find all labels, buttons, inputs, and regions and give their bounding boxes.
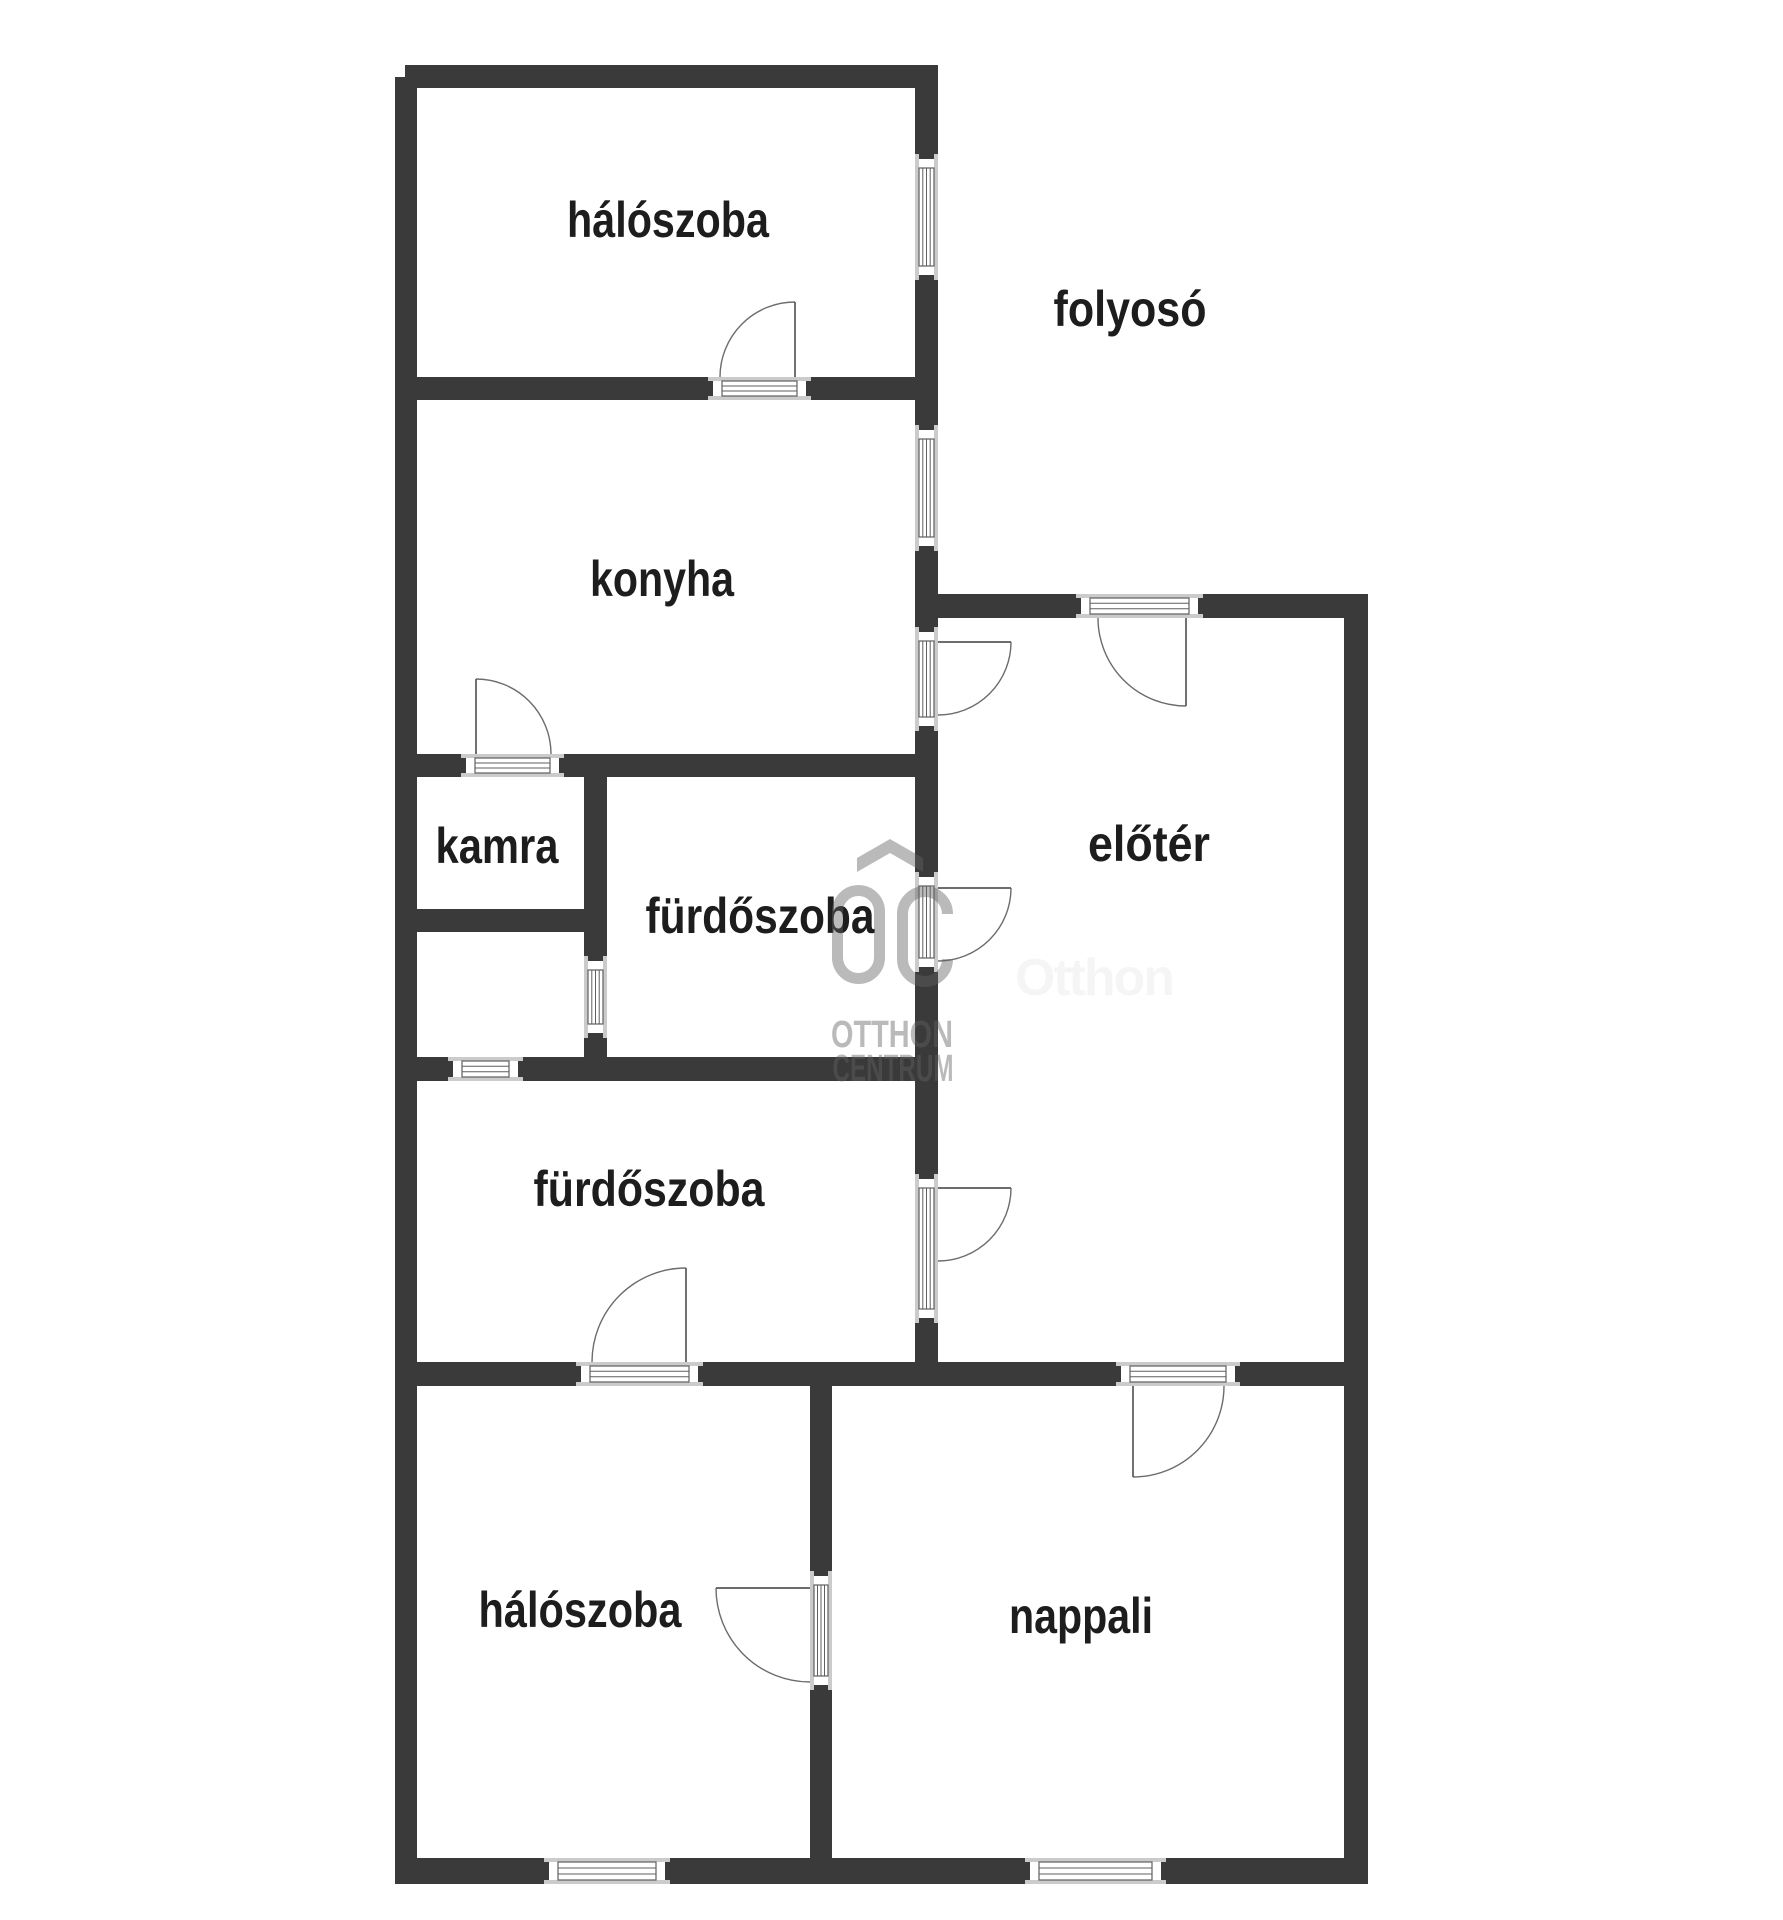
svg-text:kamra: kamra [436,818,560,874]
svg-text:előtér: előtér [1088,816,1210,872]
svg-text:Otthon: Otthon [1015,949,1175,1007]
svg-text:konyha: konyha [590,551,735,607]
svg-text:hálószoba: hálószoba [479,1582,683,1638]
svg-text:fürdőszoba: fürdőszoba [534,1161,766,1217]
svg-text:nappali: nappali [1009,1588,1153,1644]
svg-text:folyosó: folyosó [1054,281,1207,337]
svg-text:CENTRUM: CENTRUM [833,1048,954,1090]
svg-text:hálószoba: hálószoba [567,192,770,248]
